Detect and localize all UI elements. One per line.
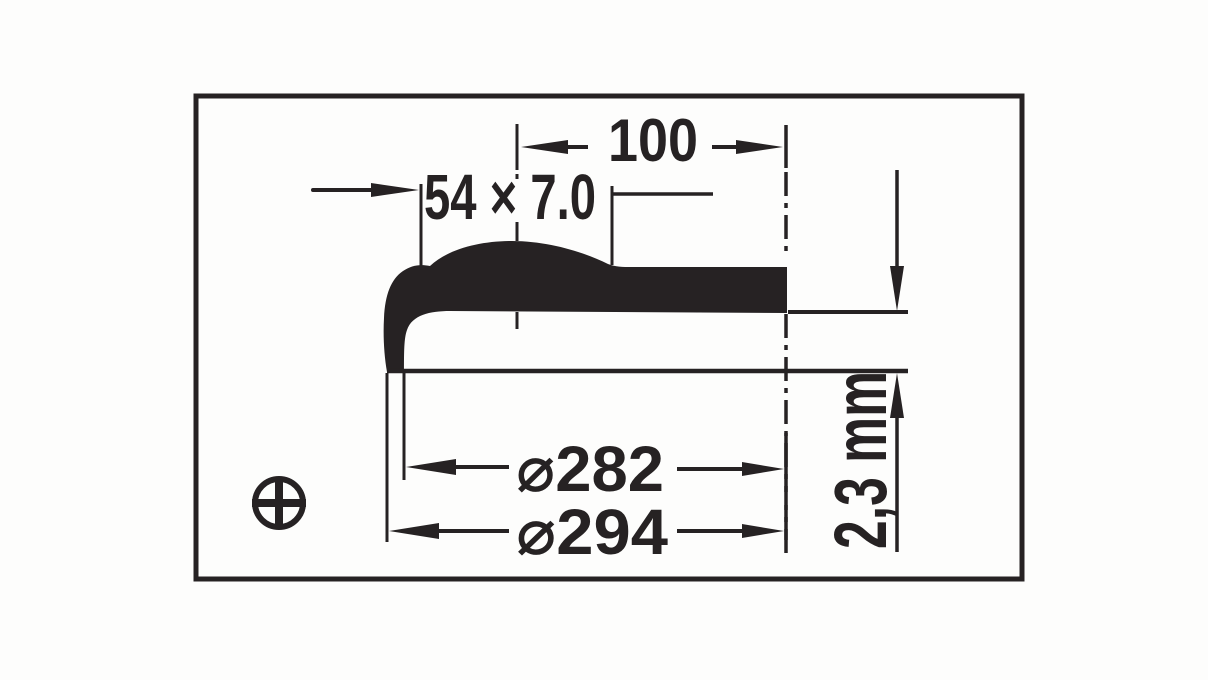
dim-width-label: 100 bbox=[608, 107, 698, 174]
dim-depth-label: 2,3 mm bbox=[819, 371, 902, 549]
dim-hump-arrowhead-right-icon bbox=[371, 183, 419, 197]
dim-d282-arrowhead-left-icon bbox=[406, 459, 456, 475]
dim-hump-label: 54 × 7.0 bbox=[424, 161, 596, 233]
projection-symbol-icon bbox=[252, 477, 306, 529]
dim-diameter-inner: ⌀282 bbox=[404, 373, 786, 505]
rim-cross-section-drawing: 54 × 7.0 100 2,3 mm bbox=[0, 0, 1208, 680]
dim-d282-arrowhead-right-icon bbox=[742, 462, 784, 476]
dim-d282-label: ⌀282 bbox=[516, 433, 664, 505]
dim-width-arrowhead-right-icon bbox=[736, 140, 783, 154]
rim-profile-section bbox=[384, 241, 787, 372]
dim-depth-arrowhead-down-icon bbox=[890, 266, 904, 311]
dim-d294-arrowhead-left-icon bbox=[389, 523, 439, 539]
dim-d294-label: ⌀294 bbox=[516, 496, 668, 568]
dim-d294-arrowhead-right-icon bbox=[742, 524, 784, 538]
scanned-drawing-page: 54 × 7.0 100 2,3 mm bbox=[0, 0, 1208, 680]
